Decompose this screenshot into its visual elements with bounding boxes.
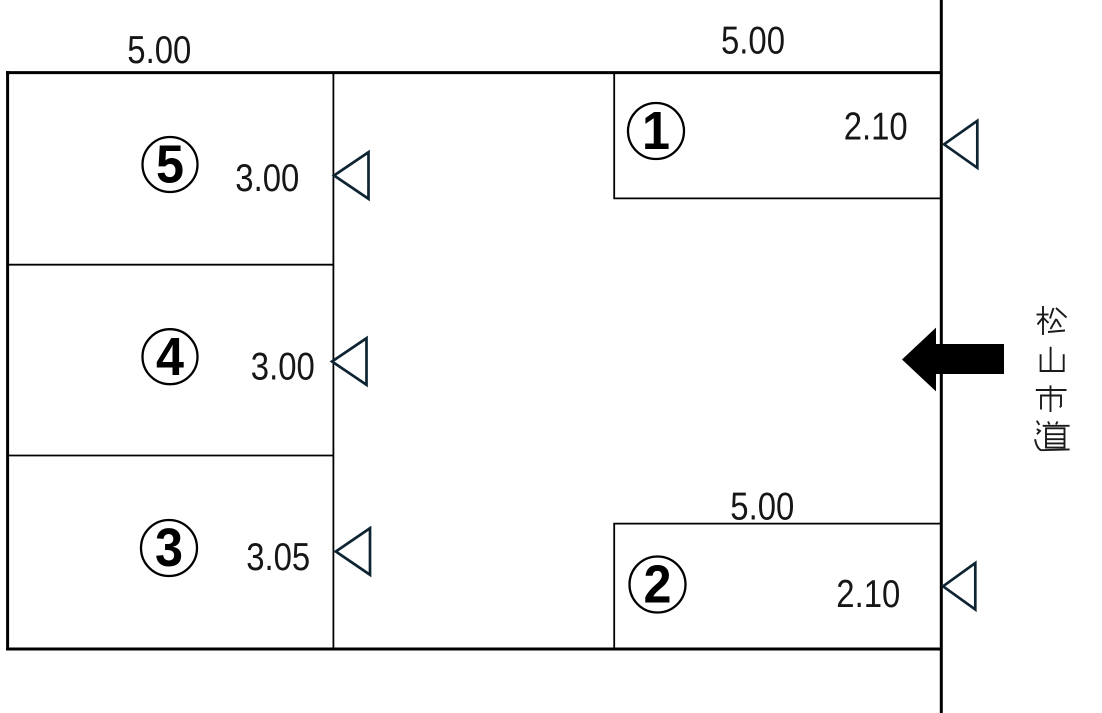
svg-text:5.00: 5.00 xyxy=(127,29,191,72)
svg-text:2.10: 2.10 xyxy=(844,105,908,148)
svg-text:3.05: 3.05 xyxy=(246,536,310,579)
svg-text:5: 5 xyxy=(156,135,184,195)
svg-text:3.00: 3.00 xyxy=(235,157,299,200)
svg-text:5.00: 5.00 xyxy=(730,485,794,528)
svg-text:2.10: 2.10 xyxy=(836,573,900,616)
svg-text:3.00: 3.00 xyxy=(251,345,315,388)
svg-text:5.00: 5.00 xyxy=(721,19,785,62)
svg-text:1: 1 xyxy=(642,101,670,161)
svg-text:2: 2 xyxy=(644,555,672,615)
svg-text:3: 3 xyxy=(155,518,183,578)
svg-text:4: 4 xyxy=(156,327,184,387)
